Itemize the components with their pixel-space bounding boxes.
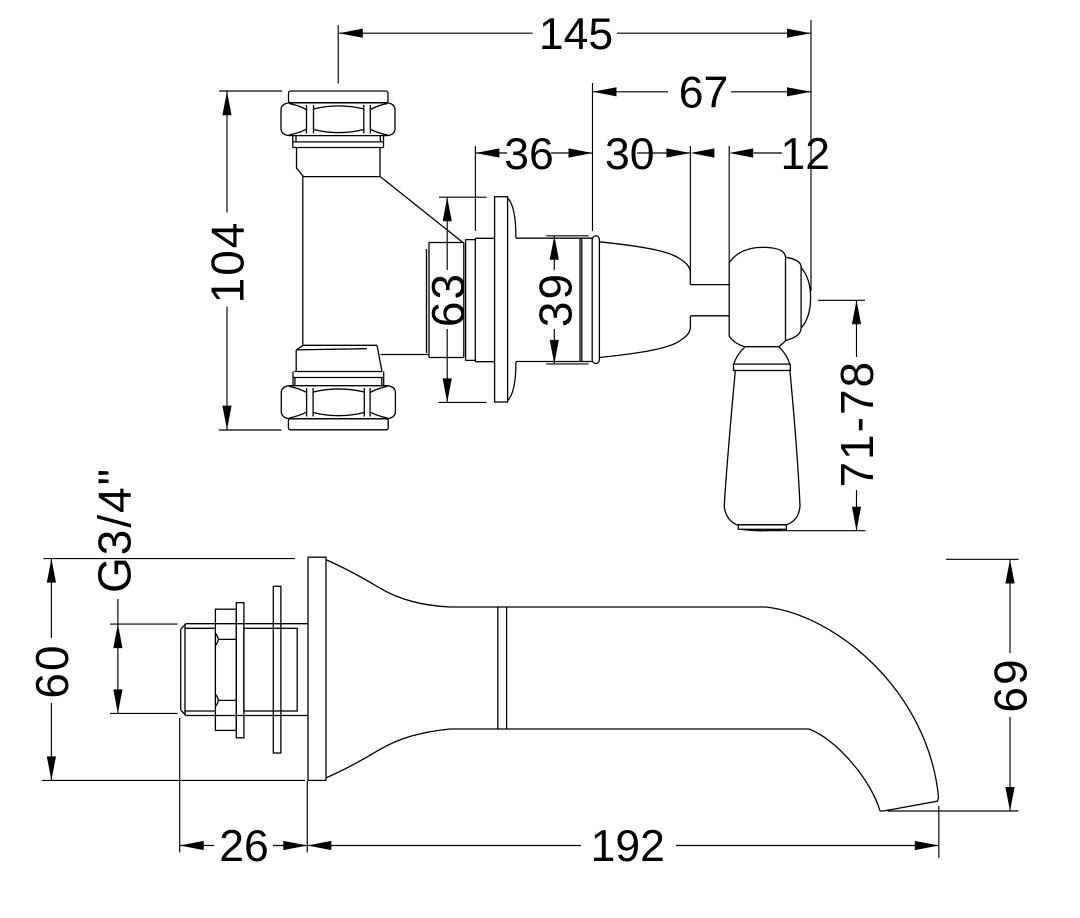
svg-text:145: 145 xyxy=(539,10,613,59)
svg-text:36: 36 xyxy=(504,130,554,179)
svg-text:71-78: 71-78 xyxy=(831,360,883,488)
svg-text:30: 30 xyxy=(605,130,655,179)
svg-text:67: 67 xyxy=(679,69,729,118)
svg-text:192: 192 xyxy=(591,822,665,871)
svg-text:60: 60 xyxy=(26,643,78,698)
svg-text:39: 39 xyxy=(529,272,581,327)
svg-text:G3/4": G3/4" xyxy=(89,467,141,593)
svg-text:26: 26 xyxy=(219,822,269,871)
svg-text:12: 12 xyxy=(781,130,831,179)
svg-text:104: 104 xyxy=(202,221,254,304)
svg-text:69: 69 xyxy=(985,657,1037,712)
